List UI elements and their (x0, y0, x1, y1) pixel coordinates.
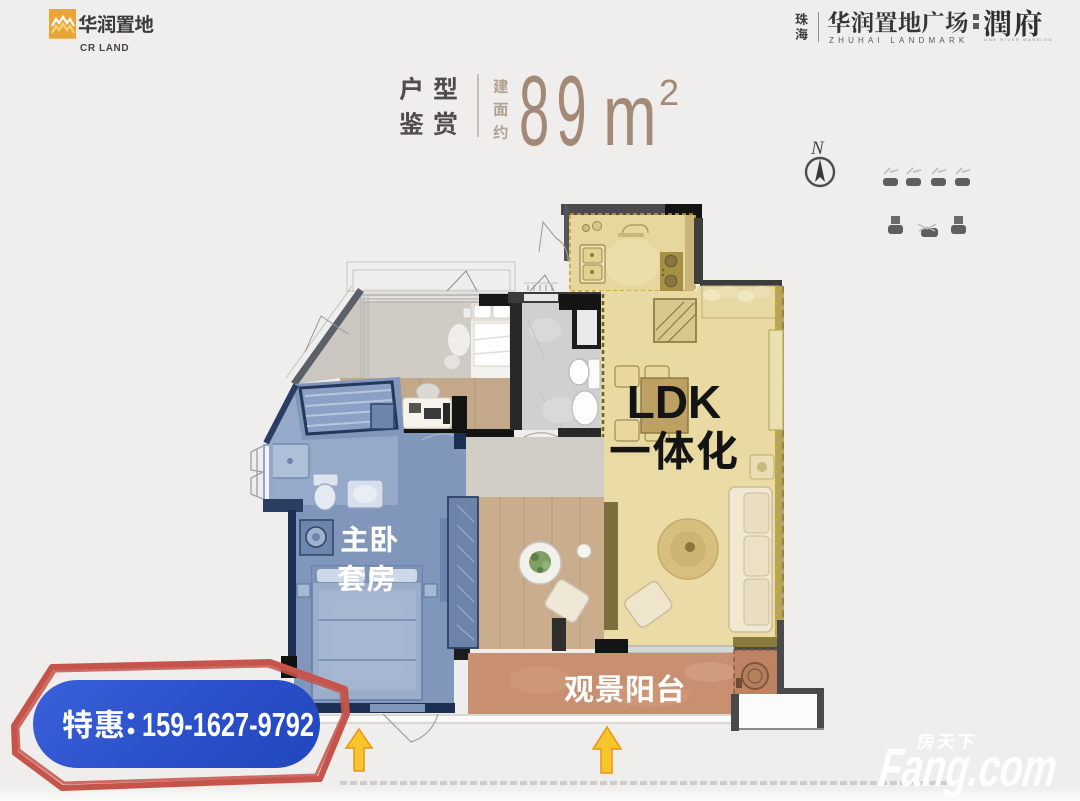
svg-text:Fang.com: Fang.com (876, 738, 1060, 798)
svg-text:159-1627-9792: 159-1627-9792 (142, 706, 314, 743)
